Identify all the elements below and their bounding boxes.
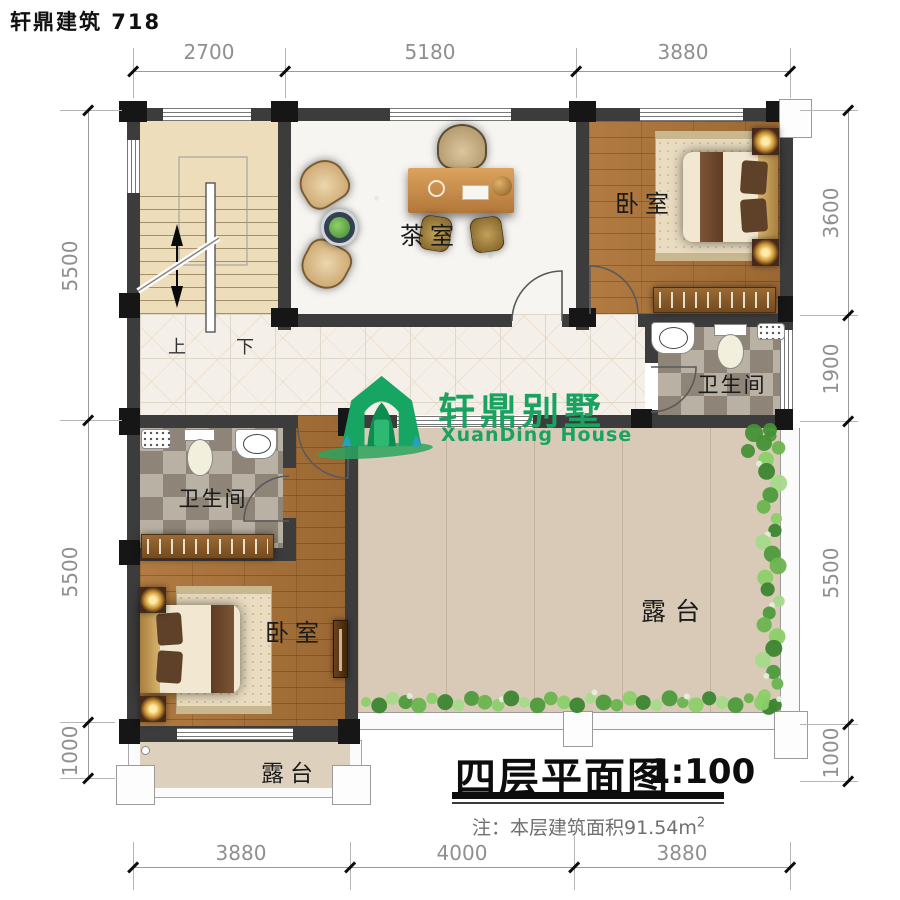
dim-label-top-1: 5180 bbox=[400, 40, 460, 64]
column bbox=[569, 308, 596, 327]
dim-label-left-0: 5500 bbox=[58, 236, 82, 296]
column bbox=[119, 408, 140, 435]
desk-globe bbox=[492, 176, 512, 196]
window-bedroomL-bottom bbox=[177, 728, 293, 740]
nightstand bbox=[140, 696, 166, 722]
desk-chair bbox=[437, 124, 487, 170]
toilet-bowl bbox=[717, 334, 744, 369]
pillow bbox=[740, 160, 768, 195]
pier-terrace-right bbox=[774, 711, 808, 759]
stairwell-treads bbox=[140, 196, 278, 330]
column bbox=[271, 101, 298, 122]
balcony-corner-detail bbox=[141, 746, 150, 755]
window-stairwell-top bbox=[163, 108, 251, 121]
column bbox=[119, 540, 140, 565]
room-label-bedroom-left: 卧室 bbox=[250, 613, 340, 648]
stair-label-up: 上 bbox=[165, 333, 189, 359]
column bbox=[631, 409, 652, 428]
column bbox=[119, 293, 140, 318]
ext-line bbox=[576, 48, 577, 98]
column bbox=[569, 101, 596, 122]
wall-tea-bedroom bbox=[576, 108, 589, 330]
column bbox=[119, 101, 147, 122]
dim-label-left-1: 5500 bbox=[58, 542, 82, 602]
wardrobe bbox=[653, 287, 776, 313]
column bbox=[271, 308, 298, 327]
wardrobe-hangers bbox=[659, 292, 770, 308]
wall-bedroomL-right bbox=[345, 415, 358, 742]
dim-label-right-3: 1000 bbox=[819, 723, 843, 783]
brand-header: 轩鼎建筑 718 bbox=[10, 6, 161, 36]
dim-label-top-2: 3880 bbox=[653, 40, 713, 64]
room-label-bathroom-right: 卫生间 bbox=[677, 369, 787, 399]
nightstand bbox=[752, 128, 779, 155]
wall-bedroomL-top bbox=[127, 415, 298, 428]
pillow bbox=[156, 612, 183, 646]
terrace-railing-right bbox=[780, 428, 800, 728]
dim-label-right-0: 3600 bbox=[819, 183, 843, 243]
terrace-floor bbox=[358, 428, 780, 712]
room-label-balcony: 露台 bbox=[250, 754, 330, 788]
nightstand bbox=[752, 239, 779, 266]
plan-note-sup: 2 bbox=[697, 816, 705, 831]
stair-label-down: 下 bbox=[233, 333, 257, 359]
wall-stair-tea bbox=[278, 108, 291, 330]
dim-label-bottom-2: 3880 bbox=[652, 841, 712, 865]
pillow bbox=[740, 198, 768, 233]
ext-line bbox=[60, 420, 122, 421]
title-underline-thin bbox=[452, 802, 724, 804]
dim-line-top bbox=[133, 71, 790, 72]
sink-basin bbox=[659, 327, 688, 349]
bed bbox=[140, 605, 240, 693]
wall-bathR-bottom bbox=[645, 415, 793, 428]
dim-label-bottom-1: 4000 bbox=[432, 841, 492, 865]
plan-scale: 1:100 bbox=[647, 752, 755, 792]
column bbox=[119, 719, 140, 744]
dim-label-top-0: 2700 bbox=[179, 40, 239, 64]
bed-runner bbox=[211, 605, 234, 693]
dim-label-right-1: 1900 bbox=[819, 339, 843, 399]
ext-line bbox=[790, 48, 791, 98]
floorplan-sheet: 轩鼎建筑 718 bbox=[0, 0, 900, 900]
dim-label-bottom-0: 3880 bbox=[211, 841, 271, 865]
pier-top-right bbox=[779, 99, 812, 138]
column bbox=[338, 408, 358, 436]
desk-magnifier bbox=[428, 180, 445, 197]
dim-line-right bbox=[848, 110, 849, 782]
window-left-wall bbox=[127, 140, 140, 193]
ext-line bbox=[60, 110, 122, 111]
wardrobe-hangers bbox=[147, 539, 268, 554]
wardrobe bbox=[141, 534, 274, 559]
pillow bbox=[156, 650, 183, 684]
sink-basin bbox=[243, 434, 271, 454]
dim-label-right-2: 5500 bbox=[819, 543, 843, 603]
sink bbox=[235, 429, 277, 459]
room-label-tea: 茶室 bbox=[390, 216, 470, 251]
dim-line-left bbox=[88, 110, 89, 778]
room-label-terrace: 露台 bbox=[630, 592, 720, 628]
plan-note: 注：本层建筑面积91.54m2 bbox=[472, 813, 705, 840]
column bbox=[775, 409, 793, 430]
tea-table-plant bbox=[329, 217, 350, 238]
pier-balcony-right bbox=[332, 765, 371, 805]
column bbox=[338, 719, 360, 744]
dim-label-left-2: 1000 bbox=[58, 721, 82, 781]
ext-line bbox=[285, 48, 286, 98]
tea-table bbox=[321, 209, 358, 246]
title-underline-thick bbox=[452, 792, 724, 799]
ext-line bbox=[133, 48, 134, 98]
nightstand bbox=[140, 587, 166, 613]
shower-fixture bbox=[141, 429, 171, 449]
plan-note-text: 注：本层建筑面积91.54m bbox=[472, 817, 697, 839]
window-tearoom-top bbox=[390, 108, 511, 121]
bed-runner bbox=[700, 152, 723, 242]
wall-bathL-right-a bbox=[283, 415, 296, 468]
toilet-bowl bbox=[187, 439, 213, 476]
desk-paper bbox=[462, 185, 489, 200]
stool bbox=[469, 215, 506, 254]
column bbox=[778, 296, 793, 322]
dim-line-bottom bbox=[133, 867, 790, 868]
room-label-bedroom-right: 卧室 bbox=[600, 184, 690, 219]
shower-fixture bbox=[757, 323, 785, 340]
room-label-bathroom-left: 卫生间 bbox=[158, 483, 268, 513]
pier-balcony-left bbox=[116, 765, 155, 805]
logo-name-en: XuanDing House bbox=[441, 424, 632, 446]
wall-tea-bottom-a bbox=[278, 314, 512, 327]
bed bbox=[683, 152, 778, 242]
pier-terrace-center bbox=[563, 711, 593, 747]
sink bbox=[651, 322, 695, 354]
window-bedroomR-top bbox=[640, 108, 743, 121]
